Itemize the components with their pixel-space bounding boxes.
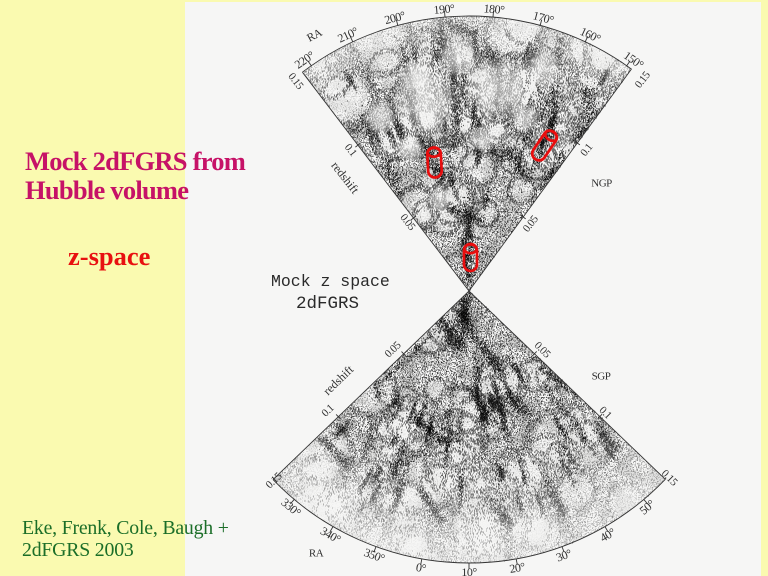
svg-text:redshift: redshift — [328, 159, 362, 197]
svg-text:10°: 10° — [461, 565, 477, 576]
svg-text:180°: 180° — [483, 1, 506, 17]
svg-text:0.15: 0.15 — [659, 468, 680, 489]
svg-text:RA: RA — [305, 26, 325, 44]
svg-text:0.1: 0.1 — [578, 142, 595, 159]
svg-text:190°: 190° — [433, 1, 456, 17]
svg-text:NGP: NGP — [591, 178, 612, 190]
svg-text:0.15: 0.15 — [633, 69, 654, 91]
svg-text:0.1: 0.1 — [342, 142, 359, 159]
svg-text:20°: 20° — [508, 559, 526, 576]
svg-text:0.15: 0.15 — [285, 71, 306, 93]
svg-text:RA: RA — [309, 548, 324, 560]
svg-text:0.1: 0.1 — [319, 402, 336, 419]
svg-text:redshift: redshift — [320, 362, 357, 398]
svg-text:0°: 0° — [415, 560, 428, 576]
svg-text:SGP: SGP — [592, 371, 611, 383]
